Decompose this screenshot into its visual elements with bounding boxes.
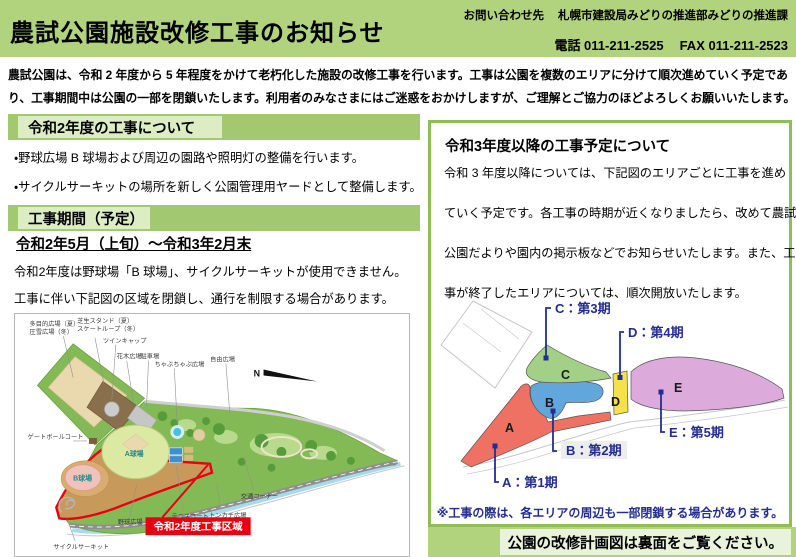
phase-diagram: A B C D E C：第3: [433, 295, 789, 501]
area-e-shape: [631, 357, 784, 411]
period-line-1: 令和2年度は野球場「B 球場」、サイクルサーキットが使用できません。: [14, 262, 407, 280]
period-line-2: 工事に伴い下記図の区域を閉鎖し、通行を制限する場合があります。: [14, 289, 394, 307]
contact-line: お問い合わせ先札幌市建設局みどりの推進部みどりの推進課: [464, 7, 789, 23]
footer-bar: 公園の改修計画図は裏面をご覧ください。: [428, 527, 796, 557]
section-title-period: 工事期間（予定）: [28, 208, 144, 229]
phase-label-d: D：第4期: [628, 325, 684, 340]
label-baseball: 野球広場: [118, 518, 143, 526]
area-d-letter: D: [611, 395, 620, 409]
zone-label-text: 令和2年度工事区域: [153, 520, 244, 533]
area-b-shape: [530, 380, 603, 418]
label-twincap: ツインキャップ: [103, 338, 147, 345]
phone-fax-line: 電話 011-211-2525FAX 011-211-2523: [554, 35, 788, 54]
label-cycle: サイクルサーキット: [53, 544, 109, 551]
body-line-1: 令和 3 年度以降については、下記図のエリアごとに工事を進め: [444, 153, 796, 193]
body-line-2: ていく予定です。各工事の時期が近くなりましたら、改めて農試: [444, 193, 796, 233]
label-gateball: ゲートボールコート: [28, 433, 84, 441]
phase-label-b: B：第2期: [566, 443, 622, 458]
header-banner: 農試公園施設改修工事のお知らせ お問い合わせ先札幌市建設局みどりの推進部みどりの…: [0, 0, 796, 57]
label-lawn-winter: スケートループ（冬）: [77, 325, 139, 333]
r2-bullet-2: ・サイクルサーキットの場所を新しく公園管理用ヤードとして整備します。: [14, 177, 422, 195]
r2-bullet-1: ・野球広場 B 球場および周辺の園路や照明灯の整備を行います。: [14, 148, 364, 166]
body-line-3: 公園だよりや園内の掲示板などでお知らせいたします。また、工: [444, 233, 796, 273]
compass-arrow-icon: [264, 370, 318, 382]
contact-org: 札幌市建設局みどりの推進部みどりの推進課: [558, 10, 788, 22]
phase-label-e: E：第5期: [669, 425, 724, 440]
closure-note: ※工事の際は、各エリアの周辺も一部閉鎖する場合があります。: [431, 504, 789, 521]
future-works-body: 令和 3 年度以降については、下記図のエリアごとに工事を進め ていく予定です。各…: [444, 153, 796, 313]
park-map-svg: N 多目的広場（夏） 圧雪広場（冬） 芝生スタンド（夏） スケートループ（冬） …: [15, 314, 409, 556]
label-field-a: A球場: [125, 449, 144, 458]
phase-diagram-svg: A B C D E C：第3: [433, 295, 789, 501]
label-multipurpose-winter: 圧雪広場（冬）: [30, 328, 74, 336]
page-title: 農試公園施設改修工事のお知らせ: [10, 13, 385, 48]
label-lawn-summer: 芝生スタンド（夏）: [77, 317, 133, 325]
area-a-letter: A: [505, 421, 514, 435]
construction-period: 令和2年5月（上旬）～令和3年2月末: [16, 233, 251, 254]
section-header-period: 工事期間（予定）: [8, 205, 420, 231]
map-playground: [193, 429, 205, 441]
label-field-b: B球場: [73, 474, 92, 483]
section-title-r2-works: 令和2年度の工事について: [28, 117, 195, 138]
phone-number: 電話 011-211-2525: [554, 38, 663, 53]
section-header-r2-works: 令和2年度の工事について: [8, 114, 420, 140]
intro-line-1: 農試公園は、令和 2 年度から 5 年程度をかけて老朽化した施設の改修工事を行い…: [8, 64, 792, 87]
area-c-letter: C: [561, 368, 570, 382]
park-map: N 多目的広場（夏） 圧雪広場（冬） 芝生スタンド（夏） スケートループ（冬） …: [14, 313, 410, 557]
future-works-box: 令和3年度以降の工事予定について 令和 3 年度以降については、下記図のエリアご…: [428, 120, 792, 527]
map-twincap-dome: [104, 402, 119, 417]
notice-page: 農試公園施設改修工事のお知らせ お問い合わせ先札幌市建設局みどりの推進部みどりの…: [0, 0, 796, 557]
phase-label-a: A：第1期: [502, 475, 558, 490]
contact-label: お問い合わせ先: [464, 10, 545, 22]
label-chapu: ちゃぷちゃぷ広場: [154, 361, 204, 369]
intro-paragraph: 農試公園は、令和 2 年度から 5 年程度をかけて老朽化した施設の改修工事を行い…: [8, 64, 792, 110]
map-tennis-courts: [169, 447, 193, 463]
area-b-letter: B: [545, 396, 554, 410]
intro-line-2: り、工事期間中は公園の一部を閉鎖いたします。利用者のみなさまにはご迷惑をおかけし…: [8, 87, 792, 110]
label-parking: 駐車場: [141, 353, 160, 361]
map-pool: [173, 428, 181, 436]
label-multipurpose-summer: 多目的広場（夏）: [30, 320, 80, 328]
phase-label-c: C：第3期: [555, 301, 611, 316]
map-gateball-court: [89, 438, 97, 444]
footer-text: 公園の改修計画図は裏面をご覧ください。: [508, 532, 784, 553]
label-traffic: 交通コーナー: [241, 492, 278, 500]
area-e-letter: E: [674, 381, 682, 395]
fax-number: FAX 011-211-2523: [680, 38, 788, 53]
footer-highlight: 公園の改修計画図は裏面をご覧ください。: [500, 529, 792, 555]
compass-n-label: N: [254, 368, 260, 378]
label-kaboku: 花木広場: [117, 353, 142, 361]
label-jiyu: 自由広場: [210, 356, 235, 364]
